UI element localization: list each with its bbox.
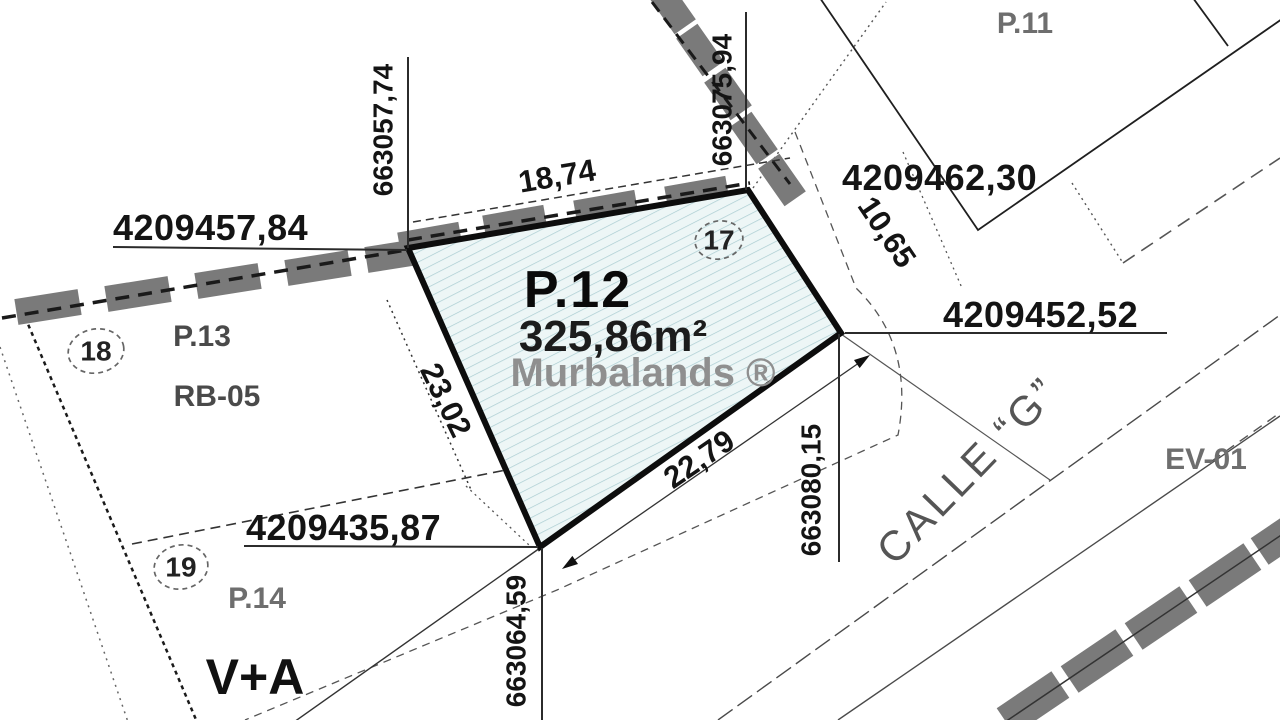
green-zone-label: EV-01	[1165, 443, 1247, 476]
p11-side-spur-line	[1193, 0, 1228, 46]
curb-corner-dotted	[1072, 183, 1123, 263]
dim-east-label: 10,65	[851, 190, 923, 274]
wall-chain-se	[997, 501, 1280, 720]
watermark-label: Murbalands ®	[510, 351, 775, 395]
parcel-p14-landuse-label: V+A	[206, 649, 305, 705]
coord-s-x: 663064,59	[501, 575, 532, 707]
street-name-label: CALLE “G”	[867, 367, 1068, 573]
wall-block	[194, 263, 261, 299]
coord-nw-y: 4209457,84	[113, 207, 308, 248]
parcel-p13-label: P.13	[173, 320, 231, 353]
plan-drawing: P.12 325,86m² Murbalands ® 17 P.11 P.13 …	[0, 0, 1280, 720]
wall-block	[1125, 586, 1198, 649]
coord-nw-x: 663057,74	[368, 63, 399, 196]
coord-e-y: 4209452,52	[943, 294, 1138, 335]
coord-s-y: 4209435,87	[246, 507, 441, 548]
vertex-number-18: 18	[80, 336, 111, 367]
west-boundary-dense-dotted	[22, 310, 197, 720]
vertex-number-19: 19	[165, 552, 196, 583]
wall-block	[1251, 501, 1280, 564]
parcel-p11-label: P.11	[997, 7, 1053, 40]
coord-e-x: 663080,15	[796, 424, 827, 556]
wall-block	[1061, 629, 1134, 692]
labels: P.12 325,86m² Murbalands ® 17 P.11 P.13 …	[80, 7, 1246, 707]
west-curb-dotted	[0, 347, 128, 720]
parcel-p14-label: P.14	[228, 582, 286, 615]
wall-block	[997, 671, 1070, 720]
wall-block	[1189, 543, 1262, 606]
parcel-name-label: P.12	[524, 261, 632, 319]
dim-arrow-sw	[559, 556, 578, 573]
coord-ne-x: 663075,94	[707, 33, 738, 166]
coord-ne-y: 4209462,30	[842, 157, 1037, 198]
dim-arrow-ne	[854, 351, 873, 368]
parcel-p13-zoning-label: RB-05	[174, 380, 261, 413]
curb-dashed-e	[1123, 158, 1280, 263]
wall-block	[284, 250, 351, 286]
cadastral-plan: P.12 325,86m² Murbalands ® 17 P.11 P.13 …	[0, 0, 1280, 720]
vertex-number-17: 17	[703, 225, 734, 256]
